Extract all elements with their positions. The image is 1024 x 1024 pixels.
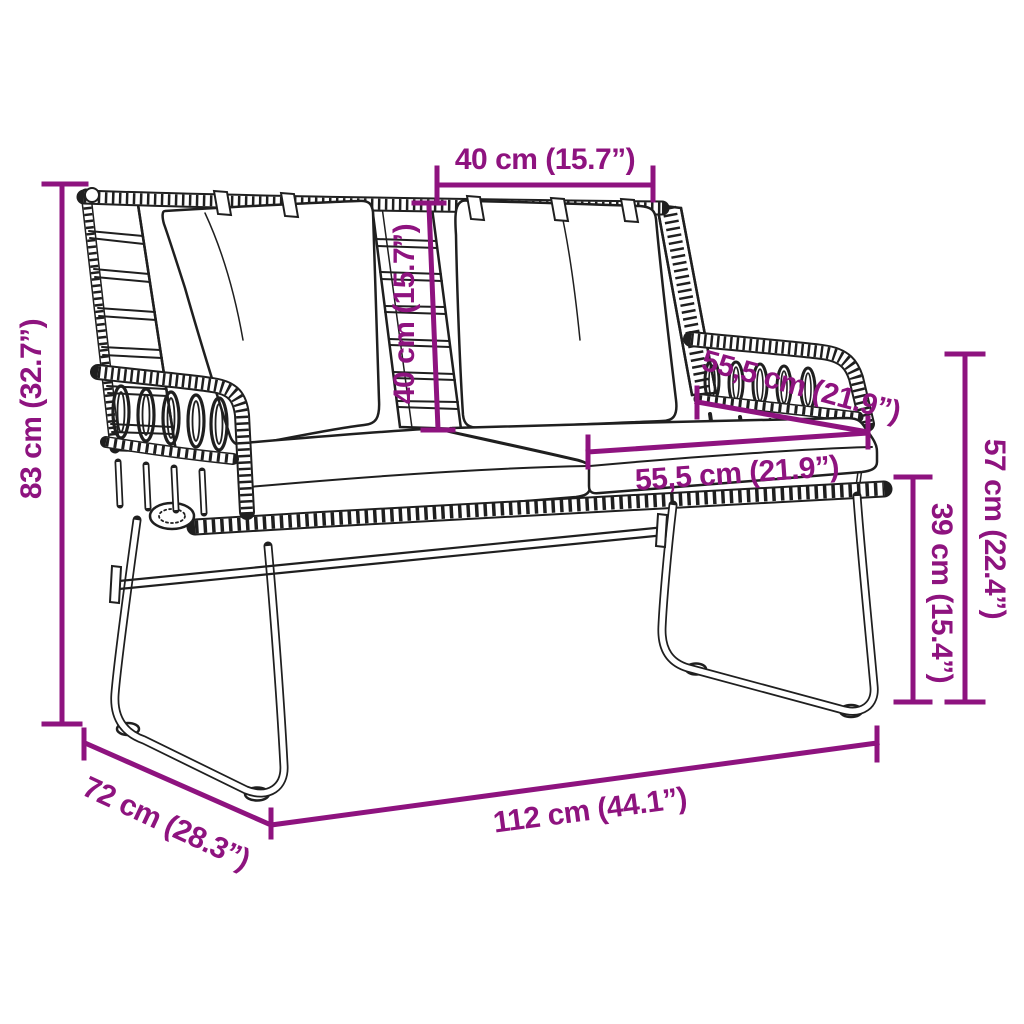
dim-label-armrest-height: 57 cm (22.4”) [977,439,1011,619]
leg-right [662,496,874,717]
diagram-canvas: 40 cm (15.7”) 40 cm (15.7”) 55,5 cm (21.… [0,0,1024,1024]
armrest-left [98,372,247,513]
back-cushion-left [163,201,380,446]
back-cushion-right [455,200,676,428]
dim-label-total-height: 83 cm (32.7”) [15,319,49,499]
dim-label-seat-height: 39 cm (15.4”) [924,503,958,683]
dim-label-back-cushion-width: 40 cm (15.7”) [455,143,635,177]
dim-label-back-cushion-height: 40 cm (15.7”) [388,224,422,404]
leg-left [115,520,284,801]
